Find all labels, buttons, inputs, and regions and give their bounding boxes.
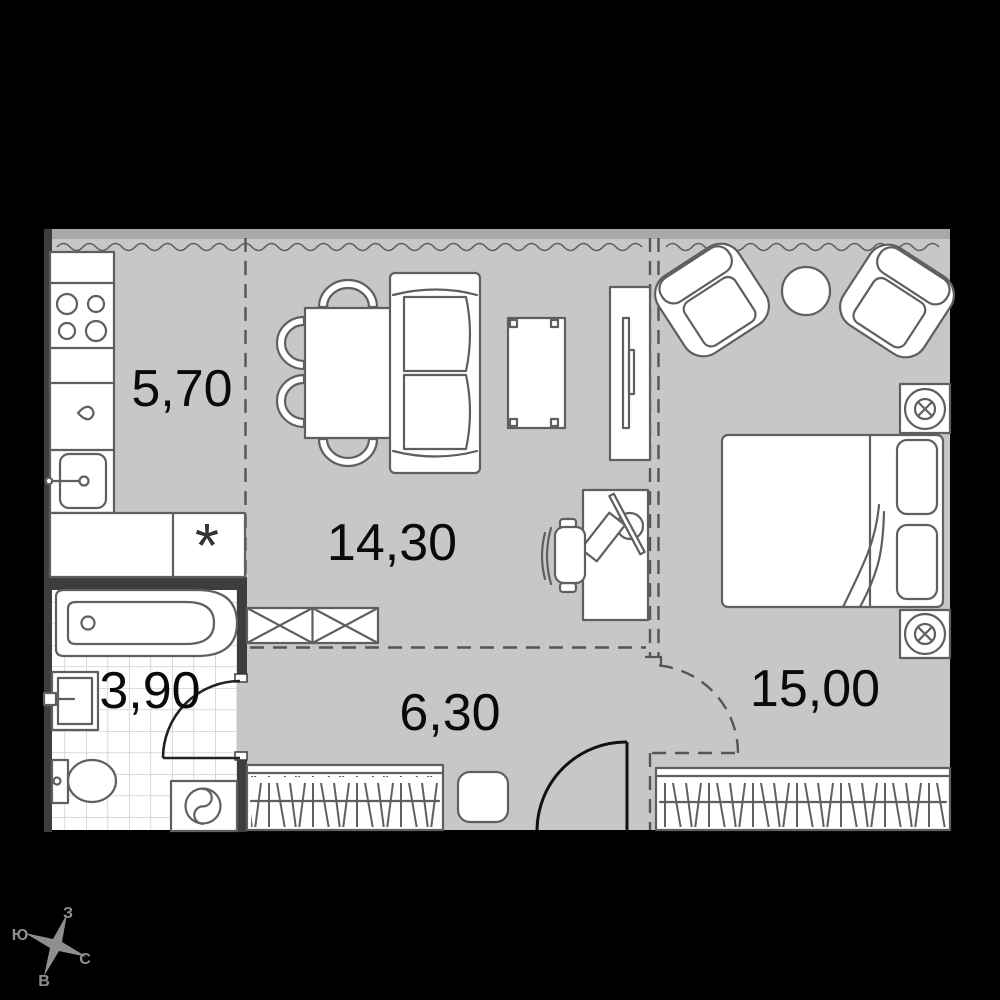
round-side-table-icon [782,267,830,315]
bathtub-icon [56,590,237,656]
washbasin-icon [44,672,98,730]
top-wall [44,229,950,239]
desk-icon [581,490,648,620]
bathroom-area-label: 3,90 [99,662,200,720]
sofa-icon [390,273,480,473]
bed-icon [722,435,943,607]
washing-machine-icon [171,781,237,831]
tv-stand-icon [610,287,650,460]
living-room-area-label: 14,30 [327,514,457,572]
compass-east-label: В [38,973,50,990]
compass-south-label: Ю [12,927,29,944]
appliance-asterisk-symbol: * [195,512,219,581]
pouf-icon [458,772,508,822]
coffee-table-icon [508,318,565,428]
hallway-area-label: 6,30 [399,684,500,742]
bathroom-right-wall-upper [237,590,247,682]
floor-plan-canvas: * [0,0,1000,1000]
hallway-closet-icon [247,765,443,830]
toilet-icon [52,760,116,803]
compass-north-label: С [79,951,91,968]
bedroom-area-label: 15,00 [750,660,880,718]
nightstand-top-icon [900,384,950,433]
compass-west-label: З [63,905,73,922]
bathroom-right-wall-lower [237,756,247,832]
dining-table-icon [305,308,392,438]
kitchen-area-label: 5,70 [131,360,232,418]
bedroom-closet-icon [656,768,950,830]
shoe-cabinet-icon [247,608,378,643]
nightstand-bottom-icon [900,610,950,658]
